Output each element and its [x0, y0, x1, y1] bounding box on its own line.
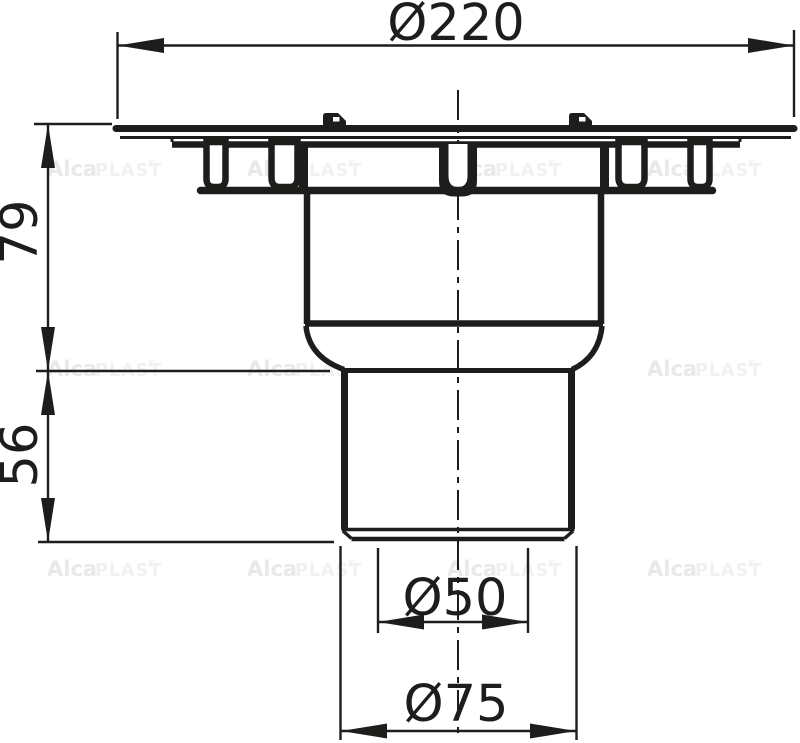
dimension-top-diameter: Ø220	[118, 0, 795, 119]
floor-drain-technical-drawing: Alca PLAST ®	[0, 0, 800, 743]
rib-structure	[201, 142, 713, 197]
center-channel-slot	[449, 144, 468, 187]
dim-label-outlet-outer-diameter: Ø75	[403, 675, 508, 734]
foot-inner-right	[619, 142, 645, 187]
watermark	[47, 157, 162, 181]
foot-inner-left	[272, 142, 298, 187]
funnel-fill	[305, 325, 603, 371]
watermark	[47, 557, 162, 581]
foot-outer-left	[207, 142, 226, 187]
body-fill	[303, 188, 606, 327]
arrow-down-icon	[41, 498, 55, 542]
dim-label-outlet-length: 56	[0, 423, 50, 488]
foot-outer-right	[691, 142, 710, 187]
arrow-right-icon	[530, 724, 576, 739]
drawing-canvas: Alca PLAST ®	[0, 0, 800, 743]
arrow-right-icon	[748, 38, 794, 53]
arrow-left-icon	[341, 724, 387, 739]
watermark	[247, 557, 362, 581]
watermark	[647, 557, 762, 581]
mounting-tab-left-notch	[333, 117, 340, 122]
arrow-up-icon	[41, 124, 55, 168]
dim-label-body-height: 79	[0, 200, 50, 265]
dim-label-outlet-inner-diameter: Ø50	[402, 569, 507, 628]
watermark	[647, 357, 762, 381]
dim-label-top-diameter: Ø220	[387, 0, 525, 53]
watermark	[47, 357, 162, 381]
arrow-left-icon	[118, 38, 164, 53]
mounting-tab-right-notch	[579, 117, 586, 122]
